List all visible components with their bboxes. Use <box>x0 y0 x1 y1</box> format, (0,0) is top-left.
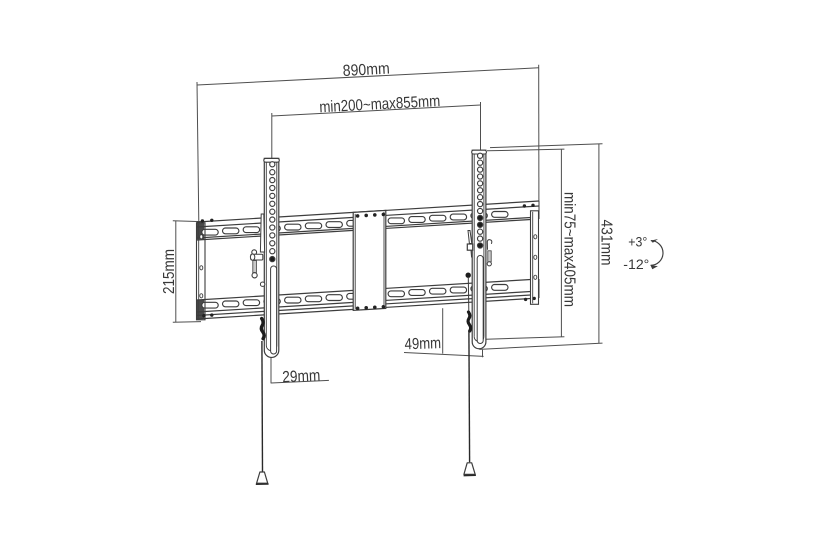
svg-text:215mm: 215mm <box>161 249 178 294</box>
svg-text:-12°: -12° <box>623 257 649 272</box>
svg-text:431mm: 431mm <box>598 220 615 266</box>
svg-text:+3°: +3° <box>628 235 647 250</box>
svg-text:min75~max405mm: min75~max405mm <box>560 192 577 307</box>
svg-text:29mm: 29mm <box>282 368 321 387</box>
svg-text:49mm: 49mm <box>404 335 441 353</box>
svg-text:890mm: 890mm <box>342 61 390 80</box>
